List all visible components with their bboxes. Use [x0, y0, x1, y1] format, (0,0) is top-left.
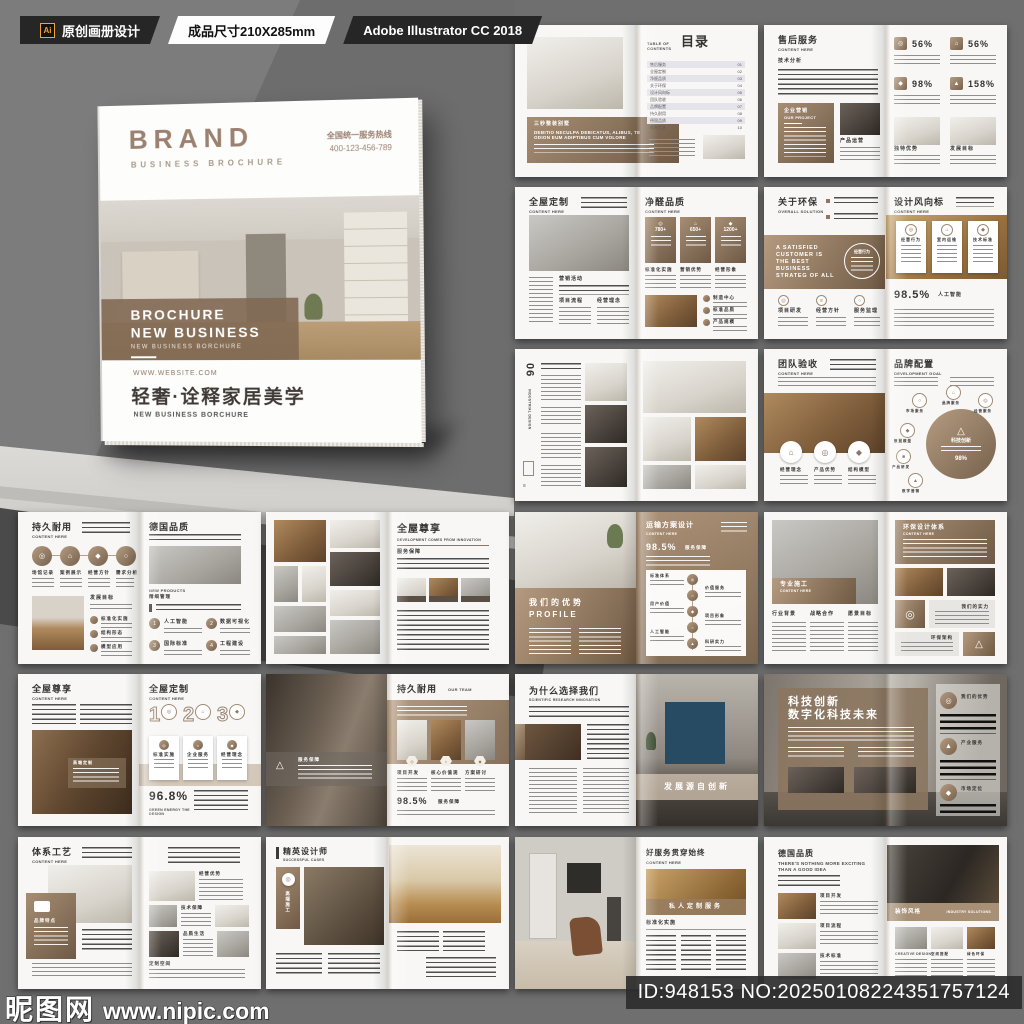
feature-icon-home: ⌂	[780, 441, 802, 463]
section-rule	[149, 604, 152, 612]
box-title: 环保设计体系	[903, 525, 987, 532]
photo-thumb	[931, 927, 963, 949]
toc-item-label: 品牌配置	[650, 104, 666, 110]
list-num	[90, 616, 98, 624]
text-lines	[820, 931, 878, 947]
photo-living-room	[527, 37, 623, 109]
text-lines	[154, 759, 174, 771]
photo-hall	[695, 465, 746, 489]
section-caption: 经营理念	[597, 299, 621, 305]
page-title: 持久耐用	[397, 684, 437, 694]
text-lines	[82, 522, 130, 536]
photo-caption: 产品运营	[840, 139, 864, 145]
text-lines	[645, 275, 676, 289]
text-lines	[778, 875, 840, 887]
step-caption: 案例展示	[60, 570, 82, 575]
text-lines	[164, 628, 202, 634]
column-caption: 行业背景	[772, 612, 796, 618]
header-software-label: Adobe Illustrator CC 2018	[363, 23, 522, 38]
spread-16-designers: 精英设计师 SUCCESSFUL CASES ◎ 高端施工	[266, 837, 509, 989]
text-lines	[705, 620, 741, 626]
page-title-en: DEVELOPMENT COMES FROM INNOVATION	[397, 538, 481, 542]
page-title-en: CONTENT HERE	[778, 47, 813, 52]
toc-item-label: 关于环保	[650, 83, 666, 89]
toc-item-label: 设计风向标	[650, 90, 670, 96]
text-lines	[721, 236, 741, 248]
toc-item-page: 02	[738, 69, 742, 74]
photo-dining-dark	[585, 405, 627, 443]
satellite-icon: ⌂	[946, 385, 961, 400]
spread-12-our-team: △ 服务保障 持久耐用 OUR TEAM ◎ ⌂ ◆ 项目开发 核心价值观 方案…	[266, 674, 509, 826]
photo-thumb-dark	[854, 767, 916, 793]
text-lines	[950, 155, 996, 165]
cover-brand-title: BRAND	[129, 122, 255, 156]
quote-circle: 经营行为	[844, 243, 880, 279]
text-lines	[220, 628, 250, 634]
satellite-caption: 数字营销	[902, 489, 920, 493]
toc-item-page: 07	[738, 104, 742, 109]
text-lines	[651, 236, 671, 248]
toc-item-page: 09	[738, 118, 742, 123]
text-lines	[32, 578, 54, 588]
page-title-en: CONTENT HERE	[646, 860, 681, 865]
icon-box-triangle: △	[963, 632, 995, 656]
band-caption: 服务保障	[298, 757, 320, 762]
card-caption: 标准化实施	[645, 267, 673, 272]
row-icon-chart: ▲	[940, 738, 957, 755]
text-lines	[778, 377, 876, 387]
photo-window	[215, 905, 249, 927]
photo-team	[397, 720, 427, 760]
step-caption: 需求分析	[116, 570, 138, 575]
photo-corridor	[585, 363, 627, 401]
text-lines	[529, 628, 571, 654]
text-lines	[443, 931, 485, 951]
photo-team	[465, 720, 495, 760]
text-lines	[541, 375, 581, 401]
text-lines	[854, 317, 880, 329]
page-title: 全屋定制	[529, 197, 569, 207]
text-lines	[101, 623, 132, 628]
brochure-cover-mockup: BRAND BUSINESS BROCHURE 全国统一服务热线 400-123…	[99, 98, 421, 443]
text-lines	[778, 69, 878, 95]
text-lines	[34, 927, 68, 945]
text-lines	[834, 213, 878, 222]
text-lines	[397, 931, 439, 951]
section-caption: 发展目标	[90, 596, 114, 602]
num-caption: 国际标准	[164, 642, 188, 648]
text-lines	[816, 317, 846, 329]
bullet-dot	[703, 307, 710, 314]
text-lines	[778, 317, 808, 329]
card-caption: 经营行为	[896, 238, 926, 243]
feature-icon-target: ◎	[814, 441, 836, 463]
page-title: 设计风向标	[894, 197, 944, 207]
watermark-site-name: 昵图网	[5, 988, 95, 1024]
column-icon-menu: ≡	[816, 295, 827, 306]
poster-canvas: Ai 原创画册设计 成品尺寸210X285mm Adobe Illustrato…	[0, 0, 1024, 1024]
photo-plant	[646, 732, 656, 750]
text-lines	[541, 465, 581, 487]
photo-team	[431, 720, 461, 760]
toc-item: 持久耐用08	[647, 110, 745, 117]
box-title-en: CONTENT HERE	[903, 532, 987, 536]
page-title: 精英设计师	[283, 847, 328, 856]
mosaic-caption: 定制空间	[149, 961, 171, 966]
circle-caption: 经营行为	[845, 249, 879, 255]
thumb-caption-band	[461, 596, 490, 602]
overlay-band: 发展源自创新	[636, 774, 758, 800]
satellite-icon: ■	[896, 449, 911, 464]
text-lines	[559, 307, 591, 325]
stat-icon-target: ◎	[894, 37, 907, 50]
toc-item: 体系工艺10	[647, 124, 745, 131]
text-lines	[950, 55, 996, 67]
toc-item-label: 售后服务	[650, 62, 666, 68]
card-caption: 标准实施	[149, 752, 179, 757]
stat-caption: 服务保障	[438, 799, 460, 804]
row-caption: 技术标准	[820, 953, 842, 958]
photo-wardrobe-dark	[585, 447, 627, 487]
header-segment-software: Adobe Illustrator CC 2018	[343, 16, 542, 44]
feature-caption: 产品优势	[814, 467, 836, 472]
cover-title-band: BROCHURE NEW BUSINESS NEW BUSINESS BORCH…	[101, 298, 299, 365]
header-ribbon: Ai 原创画册设计 成品尺寸210X285mm Adobe Illustrato…	[20, 16, 542, 44]
page-title: 为什么选择我们	[529, 686, 599, 696]
text-lines	[941, 446, 981, 454]
photo-hall	[149, 905, 177, 927]
band-title-en: CONTENT HERE	[780, 589, 848, 593]
stat-value: 56%	[968, 39, 989, 49]
profile-brown-panel: 我们的优势 PROFILE	[515, 588, 636, 664]
stat-card: ◆1200+	[715, 217, 746, 263]
step-caption: 经营方针	[88, 570, 110, 575]
thumb-caption: 空间搭配	[931, 952, 949, 956]
intro-box-text: DEBITIO NECULPA DEBICATUS, ALIBUS, TE OD…	[534, 130, 644, 141]
band-title: 专业施工	[780, 582, 848, 589]
card-icon: ◆	[227, 740, 237, 750]
box-title-en: OUR PROJECT	[784, 115, 828, 120]
page-title-en: CONTENT HERE	[894, 209, 929, 214]
card-icon: ◎	[905, 224, 917, 236]
section-caption: 服务保障	[397, 550, 421, 556]
photo-caption: 发展目标	[950, 147, 974, 153]
text-lines	[581, 197, 627, 209]
watermark: 昵图网 www.nipic.com	[5, 988, 270, 1024]
page-title-en: SCIENTIFIC RESEARCH INNOVATION	[529, 698, 600, 702]
text-lines	[713, 326, 747, 331]
photo-living	[950, 117, 996, 145]
toc-item-page: 06	[738, 97, 742, 102]
num-circle: 1	[149, 618, 160, 629]
text-lines	[680, 275, 711, 289]
cover-band-sub: NEW BUSINESS BORCHURE	[131, 344, 243, 350]
page-title: 德国品质	[778, 849, 814, 858]
step-card: ◆经营理念	[217, 736, 247, 780]
spread-07-durable: 持久耐用 CONTENT HERE ◎ ⌂ ◆ ○ 场馆记录 案例展示 经营方针…	[18, 512, 261, 664]
text-lines	[650, 608, 684, 614]
band-icon-triangle: △	[276, 760, 284, 771]
text-lines	[646, 556, 710, 566]
cover-website: WWW.WEBSITE.COM	[133, 370, 218, 377]
overlay-card: ⌂室内运维	[932, 221, 962, 273]
text-lines	[73, 768, 119, 784]
card-caption: 企业服务	[183, 752, 213, 757]
text-lines	[788, 727, 914, 741]
spread-11-craft-steps: 全屋尊享 CONTENT HERE 高端定制 全屋定制 CONTENT HERE…	[18, 674, 261, 826]
photo-dining-dark	[149, 931, 179, 957]
step-icon: ◆	[88, 546, 108, 566]
text-lines	[894, 55, 940, 67]
feature-caption: 经营理念	[780, 467, 802, 472]
page-title: 持久耐用	[32, 522, 72, 532]
text-lines	[149, 969, 245, 979]
spread-04-environment: 关于环保 OVERALL SOLUTION A SATISFIED CUSTOM…	[764, 187, 1007, 339]
toc-title: 目录	[681, 35, 709, 50]
step-icon: ⌂	[60, 546, 80, 566]
cover-hotline-number: 400-123-456-789	[330, 143, 392, 153]
photo-living-tall	[302, 566, 326, 602]
photo-plant	[607, 524, 623, 548]
text-lines	[650, 580, 684, 586]
step-card: ◎标准实施	[149, 736, 179, 780]
photo-living	[894, 117, 940, 145]
photo-kitchen-dining	[389, 845, 501, 923]
bullet-square	[826, 199, 830, 203]
text-lines-bold	[940, 804, 996, 816]
toc-item-label: 净醛品质	[650, 76, 666, 82]
step-icon: ◎	[32, 546, 52, 566]
text-lines	[183, 939, 213, 957]
text-lines	[32, 963, 132, 977]
text-lines	[188, 759, 208, 771]
text-lines	[465, 778, 495, 792]
section-caption: 项目流程	[559, 299, 583, 305]
photo-kitchen-tall	[274, 566, 298, 602]
hex-caption: 核心价值观	[431, 770, 459, 775]
timeline-caption: 标准体系	[650, 574, 670, 579]
text-lines	[529, 768, 577, 814]
photo-pedestal	[607, 897, 621, 941]
step-caption: 场馆记录	[32, 570, 54, 575]
num-caption: 人工智能	[164, 620, 188, 626]
num-caption: 工程建设	[220, 642, 244, 648]
spread-06-team-brand: 团队验收 CONTENT HERE ⌂ ◎ ◆ 经营理念 产品优势 结构模型 品…	[764, 349, 1007, 501]
photo-band: 私人定制服务	[646, 899, 746, 915]
stat-value: 98%	[912, 79, 933, 89]
column-caption: 愿景目标	[848, 612, 872, 618]
text-lines	[541, 407, 581, 427]
text-lines	[220, 650, 250, 656]
text-lines	[705, 592, 741, 598]
text-lines	[814, 475, 842, 487]
bullet-dot	[703, 319, 710, 326]
text-lines	[834, 197, 878, 206]
band-caption: 发展源自创新	[664, 782, 730, 791]
satellite-caption: 品牌服务	[942, 401, 960, 405]
text-lines	[222, 759, 242, 771]
photo-overlay-box: 高端定制	[68, 758, 126, 788]
photo-craft-hands	[895, 568, 943, 596]
toc-item: 团队验收06	[647, 96, 745, 103]
step-card: ⌂企业服务	[183, 736, 213, 780]
satellite-icon: ○	[912, 393, 927, 408]
text-lines	[784, 127, 826, 157]
text-lines	[534, 144, 654, 153]
photo-armchair	[569, 916, 603, 957]
brand-brown-box: 品牌特点	[26, 893, 76, 959]
timeline-caption: 用户价值	[650, 602, 670, 607]
column-caption: 经营方针	[816, 309, 840, 315]
card-icon: ◎	[159, 740, 169, 750]
header-segment-size: 成品尺寸210X285mm	[168, 16, 335, 44]
cover-band-line1: BROCHURE	[130, 306, 225, 322]
photo-stairs	[643, 465, 691, 489]
cover-band-rule	[131, 356, 156, 358]
text-lines	[90, 604, 132, 612]
page-title-en: DEVELOPMENT GOAL	[894, 371, 942, 376]
text-lines	[541, 363, 581, 370]
header-size-label: 成品尺寸210X285mm	[188, 21, 315, 40]
text-lines	[967, 959, 995, 977]
timeline-node: ◆	[687, 606, 698, 617]
page-title: 品牌配置	[894, 359, 934, 369]
page-title: 售后服务	[778, 35, 818, 45]
timeline-node: ○	[687, 622, 698, 633]
brand-center-circle: △ 科技创新 98%	[926, 409, 996, 479]
text-lines	[587, 724, 629, 760]
photo-thumb	[895, 927, 927, 949]
page-title-en: CONTENT HERE	[646, 532, 677, 536]
photo-shelf-wide	[274, 636, 326, 654]
chat-bubble-icon	[34, 901, 50, 912]
text-lines	[848, 475, 876, 487]
text-lines	[820, 961, 878, 977]
spread-14-tech-innovation: 科技创新 数字化科技未来 ◎ 我们的优势 ▲ 产业服务 ◆ 市场定位	[764, 674, 1007, 826]
toc-item: 全屋定制02	[647, 68, 745, 75]
page-title: 德国品质	[149, 522, 189, 532]
text-lines	[950, 95, 996, 107]
band-title: 装饰风格	[895, 909, 921, 915]
card-caption: 技术标准	[968, 238, 998, 243]
num-caption: 数据可视化	[220, 620, 250, 626]
text-lines	[681, 935, 711, 973]
page-title-en: CONTENT HERE	[32, 859, 67, 864]
text-lines	[88, 578, 110, 588]
num-circle: 2	[206, 618, 217, 629]
photo-office	[840, 103, 880, 135]
text-lines	[156, 604, 241, 612]
toc-item: 关于环保04	[647, 82, 745, 89]
accent-strip	[515, 724, 525, 760]
header-segment-design: Ai 原创画册设计	[20, 16, 160, 44]
card-icon: ⌂	[193, 740, 203, 750]
num-circle: 4	[206, 640, 217, 651]
toc-item-label: 持久耐用	[650, 111, 666, 117]
page-title-en: CONTENT HERE	[32, 696, 67, 701]
text-lines	[164, 650, 202, 656]
toc-item-label: 体系工艺	[650, 125, 666, 131]
stat-caption-en: GREEN ENERGY THE DESIGN	[149, 808, 193, 817]
overlay-band: △ 服务保障	[266, 752, 387, 786]
text-lines	[830, 359, 876, 371]
gray-box: 我们的实力	[929, 600, 995, 628]
text-lines	[901, 642, 953, 654]
icon-box-target: ◎	[895, 600, 925, 628]
card-caption: 经营形象	[715, 267, 737, 272]
photo-office-light	[330, 520, 380, 548]
text-lines	[788, 747, 844, 759]
text-lines	[149, 534, 241, 542]
photo-wood-ceiling	[330, 552, 380, 586]
photo-artwork-dark	[304, 867, 384, 945]
text-lines	[772, 622, 806, 652]
section-caption: 精细管理	[149, 594, 171, 599]
bullet-dot	[703, 295, 710, 302]
text-lines	[894, 377, 938, 387]
satellite-icon: ◆	[900, 423, 915, 438]
text-lines-bold	[940, 760, 996, 780]
mosaic-caption: 技术保障	[181, 905, 203, 910]
toc-item: 净醛品质03	[647, 75, 745, 82]
mosaic-caption: 经营优势	[199, 871, 221, 876]
card-value: 780+	[649, 227, 672, 233]
spread-10-construction: 专业施工 CONTENT HERE 行业背景 战略合作 愿景目标 环保设计体系 …	[764, 512, 1007, 664]
text-lines	[973, 245, 993, 263]
list-num	[90, 630, 98, 638]
text-lines	[820, 901, 878, 917]
text-lines	[894, 95, 940, 107]
photo-concrete-stairs	[149, 546, 241, 584]
spread-02-after-sales: 售后服务 CONTENT HERE 技术分析 企业营销 OUR PROJECT …	[764, 25, 1007, 177]
photo-door	[529, 853, 557, 939]
page-title-en: THERE'S NOTHING MORE EXCITING THAN A GOO…	[778, 861, 870, 872]
photo-thumb-dark	[788, 767, 844, 793]
card-caption: 经营理念	[217, 752, 247, 757]
card-value: 650+	[684, 227, 707, 233]
thumb-caption-band	[429, 596, 458, 602]
timeline-node: ▲	[687, 638, 698, 649]
chapter-side-label: INDUSTRIAL DESIGN	[527, 389, 531, 430]
brand-mark	[523, 461, 534, 476]
text-lines	[894, 309, 994, 327]
toc-item: 售后服务01	[647, 61, 745, 68]
panel-title-1: 科技创新	[788, 696, 918, 709]
row-caption: 市场定位	[961, 786, 983, 791]
section-caption: 营销活动	[559, 277, 583, 283]
tag-icon: ◎	[282, 873, 295, 886]
text-lines	[168, 847, 240, 865]
title-rule	[276, 847, 279, 859]
panel-title: 我们的优势	[529, 598, 584, 607]
bullet-square	[826, 215, 830, 219]
toc-item-page: 05	[738, 90, 742, 95]
satellite-icon: ▲	[908, 473, 923, 488]
section-caption: 标准化实施	[646, 921, 676, 927]
text-lines	[397, 558, 489, 572]
step-icon: ○	[116, 546, 136, 566]
cover-hotline-label: 全国统一服务热线	[327, 129, 392, 142]
page-title: 关于环保	[778, 197, 818, 207]
tech-brown-panel: 科技创新 数字化科技未来	[778, 688, 928, 810]
text-lines	[541, 433, 581, 459]
page-title: 全屋尊享	[32, 684, 72, 694]
spread-15-craft-system: 体系工艺 CONTENT HERE 品牌特点 经营优势 技术保障 品质生活 定制…	[18, 837, 261, 989]
column-caption: 战略合作	[810, 612, 834, 618]
stat-value: 98.5%	[894, 289, 930, 302]
photo-corridor-full	[266, 674, 387, 826]
card-icon: ◆	[977, 224, 989, 236]
